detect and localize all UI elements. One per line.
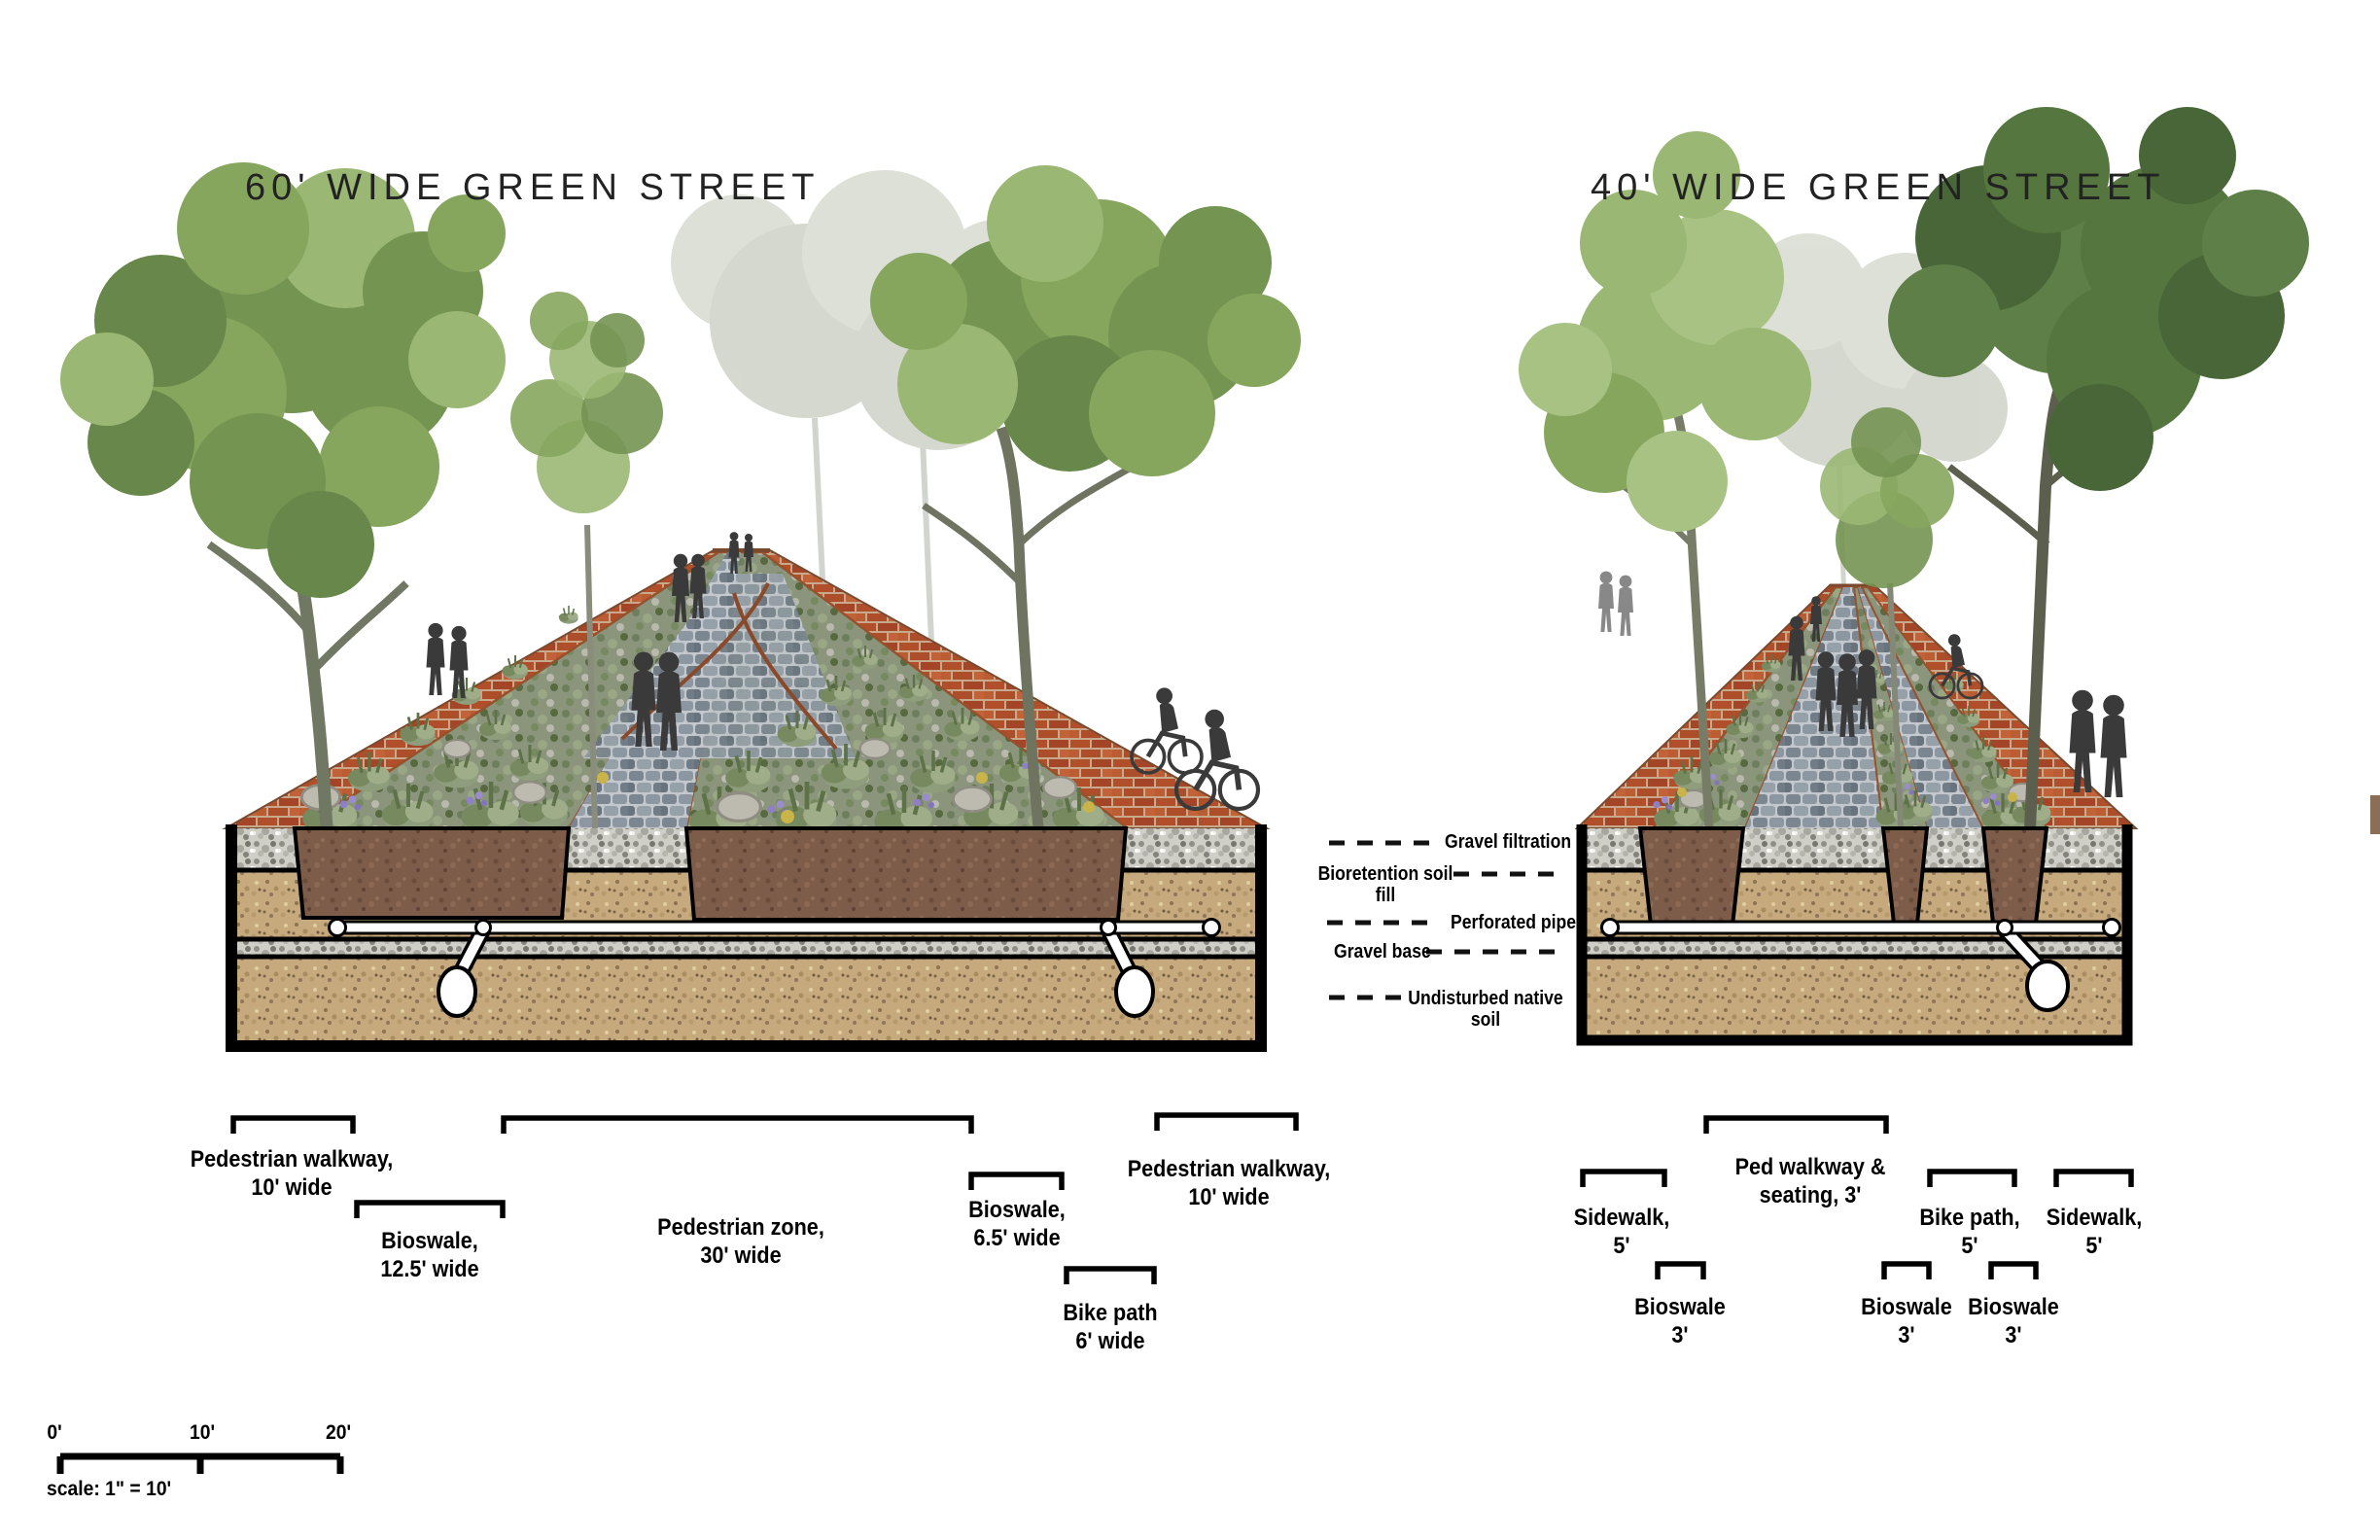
dim-label-bioswale-b-40: Bioswale 3' — [1861, 1293, 1952, 1349]
dim-label-ped-walkway-seating-40: Ped walkway & seating, 3' — [1735, 1153, 1886, 1209]
dim-line: 5' — [2047, 1232, 2142, 1260]
legend-bioretention-soil-fill: Bioretention soil fill — [1318, 863, 1453, 906]
section-60ft — [231, 824, 1261, 1046]
perforated-pipe-60 — [331, 922, 1218, 933]
bioswale-trough-right-60 — [686, 828, 1126, 920]
scale-tick-0: 0' — [47, 1421, 61, 1445]
dim-line: seating, 3' — [1735, 1181, 1886, 1209]
dim-line: 5' — [1919, 1232, 2019, 1260]
title-60ft-street: 60' WIDE GREEN STREET — [245, 167, 820, 209]
legend-undisturbed-native-soil: Undisturbed native soil — [1408, 988, 1562, 1031]
dim-label-bioswale-a-40: Bioswale 3' — [1634, 1293, 1726, 1349]
dim-line: Bioswale — [1634, 1293, 1726, 1321]
dim-line: Bioswale, — [380, 1227, 478, 1255]
dim-label-bike-path-60: Bike path 6' wide — [1063, 1299, 1157, 1355]
dim-label-bioswale-12-5-60: Bioswale, 12.5' wide — [380, 1227, 478, 1283]
legend-line: soil — [1408, 1009, 1562, 1031]
dim-line: 6' wide — [1063, 1327, 1157, 1355]
scene-60ft — [60, 162, 1301, 841]
dim-line: Bioswale, — [968, 1196, 1066, 1224]
dim-label-ped-walkway-left-60: Pedestrian walkway, 10' wide — [191, 1145, 394, 1202]
legend-gravel-filtration: Gravel filtration — [1445, 831, 1571, 853]
dim-line: Pedestrian walkway, — [1128, 1155, 1331, 1183]
dim-line: Sidewalk, — [1574, 1204, 1669, 1232]
dim-line: 3' — [1861, 1321, 1952, 1349]
dim-line: 30' wide — [657, 1242, 824, 1270]
dim-line: 10' wide — [191, 1173, 394, 1202]
perforated-pipe-40 — [1603, 922, 2119, 933]
legend-line: fill — [1318, 885, 1453, 906]
section-40ft — [1582, 824, 2127, 1040]
dim-line: Bioswale — [1968, 1293, 2059, 1321]
dim-line: 10' wide — [1128, 1183, 1331, 1211]
scale-caption: scale: 1" = 10' — [47, 1478, 171, 1501]
dim-line: 3' — [1968, 1321, 2059, 1349]
legend-gravel-base: Gravel base — [1334, 941, 1431, 962]
dim-line: 6.5' wide — [968, 1224, 1066, 1252]
drain-right-60 — [1116, 967, 1153, 1016]
dim-line: Bike path — [1063, 1299, 1157, 1327]
dim-line: Bike path, — [1919, 1204, 2019, 1232]
dim-label-bioswale-c-40: Bioswale 3' — [1968, 1293, 2059, 1349]
scale-tick-20: 20' — [326, 1421, 351, 1445]
bioswale-trough-a-40 — [1640, 828, 1743, 926]
dim-line: 5' — [1574, 1232, 1669, 1260]
bioswale-trough-left-60 — [295, 828, 569, 918]
bioswale-trough-c-40 — [1983, 828, 2047, 924]
drain-left-60 — [438, 967, 475, 1016]
dim-label-pedestrian-zone-60: Pedestrian zone, 30' wide — [657, 1213, 824, 1270]
dim-label-sidewalk-left-40: Sidewalk, 5' — [1574, 1204, 1669, 1260]
dim-line: 3' — [1634, 1321, 1726, 1349]
legend-perforated-pipe: Perforated pipe — [1451, 912, 1576, 933]
scale-tick-10: 10' — [190, 1421, 215, 1445]
dim-line: Pedestrian walkway, — [191, 1145, 394, 1173]
dim-line: Sidewalk, — [2047, 1204, 2142, 1232]
scene-40ft — [1519, 107, 2309, 833]
green-street-diagram: 60' WIDE GREEN STREET 40' WIDE GREEN STR… — [0, 0, 2380, 1540]
dim-label-ped-walkway-right-60: Pedestrian walkway, 10' wide — [1128, 1155, 1331, 1211]
cropped-edge-fragment — [2370, 795, 2380, 834]
dim-line: Pedestrian zone, — [657, 1213, 824, 1242]
legend-line: Undisturbed native — [1408, 988, 1562, 1009]
scale-ruler — [60, 1456, 340, 1474]
dim-label-sidewalk-right-40: Sidewalk, 5' — [2047, 1204, 2142, 1260]
dim-label-bike-path-40: Bike path, 5' — [1919, 1204, 2019, 1260]
title-40ft-street: 40' WIDE GREEN STREET — [1591, 167, 2165, 209]
dim-line: Bioswale — [1861, 1293, 1952, 1321]
dim-line: 12.5' wide — [380, 1255, 478, 1283]
legend-line: Bioretention soil — [1318, 863, 1453, 885]
dim-label-bioswale-6-5-60: Bioswale, 6.5' wide — [968, 1196, 1066, 1252]
drain-40 — [2027, 962, 2068, 1010]
dim-line: Ped walkway & — [1735, 1153, 1886, 1181]
